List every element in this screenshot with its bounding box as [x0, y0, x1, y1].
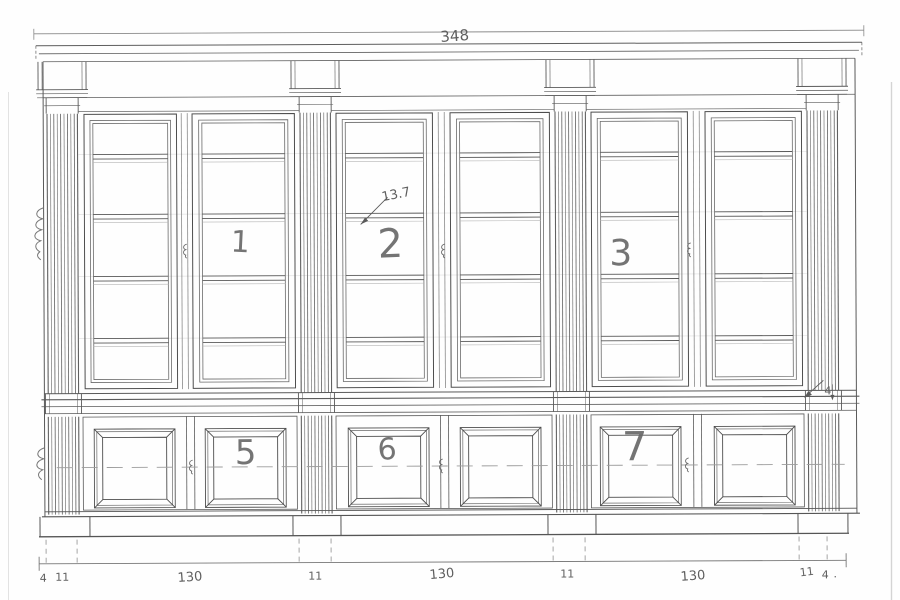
plinth-block	[293, 515, 341, 535]
dim-trailing-dot: .	[833, 567, 837, 580]
dim-label: 11	[560, 567, 574, 580]
plinth-block	[798, 513, 848, 533]
fluted-pilaster-upper	[47, 114, 79, 394]
dim-label: 130	[177, 569, 203, 586]
fluted-pilaster-upper	[300, 113, 332, 393]
fluted-pilaster-lower	[808, 413, 839, 511]
door-number-7: 7	[622, 424, 648, 470]
cornice	[36, 42, 862, 98]
upper-glazed-door	[84, 114, 178, 389]
dim-label: 130	[680, 568, 706, 585]
fluted-pilaster-lower	[301, 416, 332, 514]
upper-glazed-door	[591, 112, 689, 387]
plinth-block	[548, 514, 596, 534]
shelf-height-label: 13.7	[380, 185, 411, 205]
bookcase-elevation-drawing: 348	[0, 0, 900, 600]
keyhole-mark	[442, 244, 445, 258]
raised-panel	[460, 427, 541, 506]
pilaster-capital	[796, 58, 848, 110]
waist-molding	[41, 390, 859, 414]
base-molding	[39, 508, 860, 537]
dim-label: 4	[40, 572, 47, 585]
dim-label: 11	[55, 571, 69, 584]
door-number-5: 5	[235, 433, 257, 473]
fluted-pilaster-lower	[556, 414, 587, 512]
upper-glazed-door	[450, 112, 551, 387]
dim-label: 130	[429, 566, 455, 583]
door-number-6: 6	[377, 432, 398, 468]
door-number-1: 1	[230, 224, 251, 260]
keyhole-mark	[184, 244, 187, 258]
raised-panel	[714, 426, 795, 505]
pilaster-capital	[544, 59, 596, 111]
dim-label: 11	[308, 570, 322, 583]
drawing-sheet: 348	[0, 0, 900, 600]
bottom-dimension: 4 11 130 11 130 11 130 11 4 .	[39, 536, 846, 587]
waist-block	[45, 394, 81, 414]
lower-door-frames	[83, 413, 804, 510]
waist-thickness-label: 4	[824, 384, 831, 397]
waist-block	[298, 393, 334, 413]
dim-label: 4	[822, 568, 829, 581]
dim-label: 11	[799, 565, 815, 580]
pilaster-capital	[289, 60, 341, 112]
pilaster-capital	[36, 62, 88, 114]
margin-squiggle-marks	[35, 208, 45, 480]
shelf-height-leader: 13.7	[360, 185, 411, 225]
waist-block	[553, 391, 589, 411]
fluted-pilaster-upper	[807, 110, 839, 390]
case-top-rails	[78, 108, 806, 111]
raised-panel	[94, 429, 175, 508]
fluted-pilaster-lower	[48, 417, 79, 515]
total-width-label: 348	[440, 26, 470, 46]
door-number-2: 2	[377, 221, 404, 268]
plinth-block	[40, 517, 90, 537]
door-number-3: 3	[609, 233, 632, 274]
upper-glazed-door	[705, 111, 803, 386]
fluted-pilaster-upper	[555, 111, 587, 391]
